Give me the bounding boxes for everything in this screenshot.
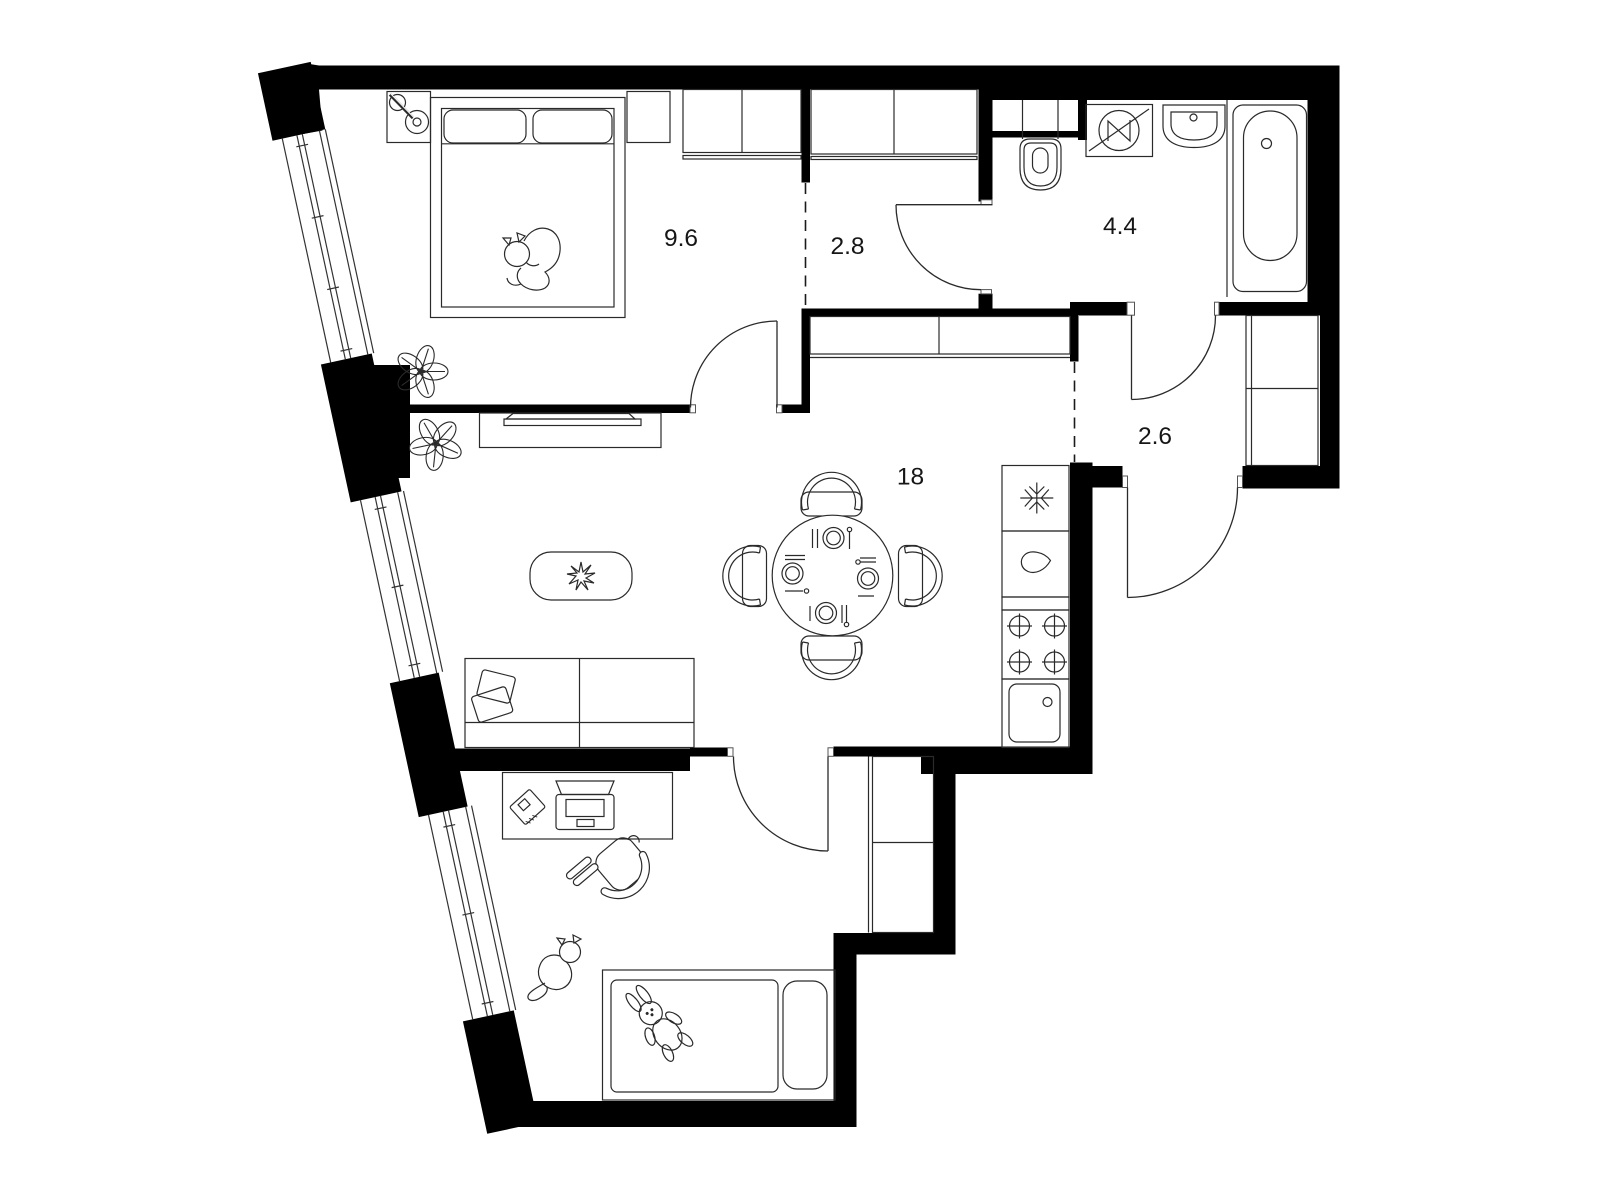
svg-text:9.6: 9.6 (664, 225, 698, 252)
svg-text:18: 18 (897, 464, 924, 491)
svg-text:2.6: 2.6 (1138, 423, 1172, 450)
svg-text:2.8: 2.8 (830, 233, 864, 260)
svg-text:4.4: 4.4 (1103, 213, 1137, 240)
